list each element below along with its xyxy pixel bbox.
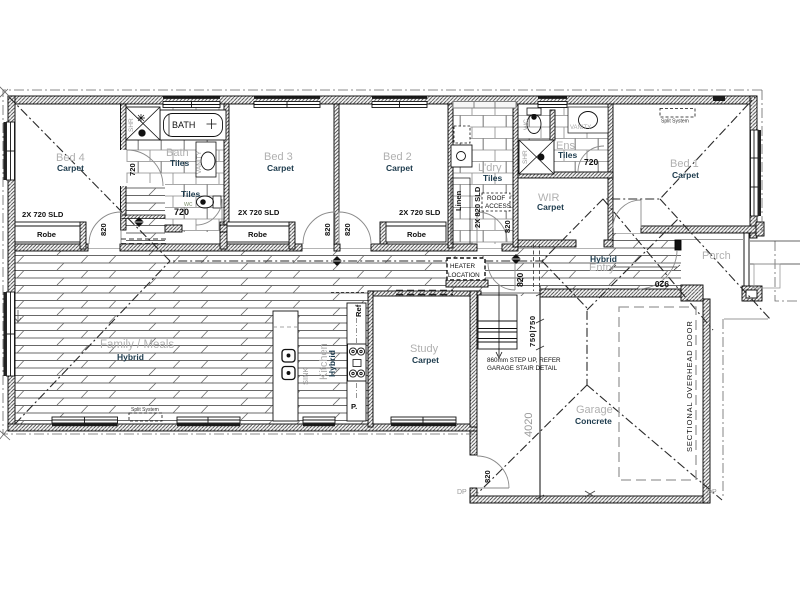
svg-text:720: 720 — [128, 163, 137, 176]
svg-text:Family / Meals: Family / Meals — [100, 339, 174, 351]
svg-text:Split System: Split System — [661, 119, 689, 125]
svg-text:820: 820 — [323, 223, 332, 236]
svg-text:P.: P. — [351, 402, 357, 411]
svg-text:ACCESS: ACCESS — [485, 203, 511, 210]
svg-text:Carpet: Carpet — [267, 163, 294, 173]
svg-text:2X 720 SLD: 2X 720 SLD — [238, 208, 280, 217]
svg-text:820: 820 — [483, 470, 492, 483]
svg-text:Study: Study — [410, 343, 439, 355]
svg-text:720: 720 — [174, 207, 189, 217]
svg-text:BATH: BATH — [172, 120, 195, 130]
svg-text:DP: DP — [457, 489, 467, 496]
svg-text:SHR: SHR — [128, 118, 135, 132]
svg-text:820: 820 — [503, 220, 512, 233]
svg-text:Ref: Ref — [354, 304, 363, 317]
svg-text:Tiles: Tiles — [558, 150, 577, 160]
svg-text:DP: DP — [707, 489, 717, 496]
svg-text:Entry: Entry — [589, 262, 615, 274]
svg-text:HEATER: HEATER — [450, 263, 476, 270]
svg-text:Tiles: Tiles — [170, 158, 189, 168]
svg-text:ROOF: ROOF — [487, 195, 505, 202]
svg-text:Hybrid: Hybrid — [327, 350, 337, 377]
svg-text:860mm STEP UP, REFER: 860mm STEP UP, REFER — [487, 357, 561, 364]
svg-text:Bed 2: Bed 2 — [383, 151, 412, 163]
svg-text:Tiles: Tiles — [181, 189, 200, 199]
svg-text:Bed 1: Bed 1 — [670, 158, 699, 170]
svg-text:SHR: SHR — [522, 150, 529, 164]
svg-text:Carpet: Carpet — [412, 355, 439, 365]
svg-text:Carpet: Carpet — [537, 202, 564, 212]
svg-text:Tiles: Tiles — [483, 173, 502, 183]
svg-text:Carpet: Carpet — [386, 163, 413, 173]
svg-text:Bed 3: Bed 3 — [264, 151, 293, 163]
svg-text:Robe: Robe — [248, 230, 267, 239]
svg-text:Porch: Porch — [702, 250, 731, 262]
svg-text:4020: 4020 — [523, 413, 535, 437]
svg-text:VANITY: VANITY — [196, 150, 203, 174]
svg-text:Concrete: Concrete — [575, 416, 612, 426]
svg-text:Hybrid: Hybrid — [117, 352, 144, 362]
svg-text:VANITY: VANITY — [570, 125, 591, 131]
svg-text:Split System: Split System — [131, 407, 159, 413]
svg-text:750|750: 750|750 — [528, 315, 537, 347]
svg-text:Linen: Linen — [454, 190, 463, 211]
svg-text:Robe: Robe — [37, 230, 56, 239]
svg-text:GARAGE STAIR DETAIL: GARAGE STAIR DETAIL — [487, 365, 558, 372]
svg-text:Carpet: Carpet — [672, 170, 699, 180]
svg-text:Carpet: Carpet — [57, 163, 84, 173]
svg-text:Garage: Garage — [576, 404, 613, 416]
svg-text:SINK: SINK — [301, 367, 310, 385]
svg-text:wc: wc — [183, 201, 193, 208]
svg-text:920: 920 — [655, 279, 669, 289]
svg-text:2X 820 SLD: 2X 820 SLD — [473, 186, 482, 228]
svg-text:SECTIONAL OVERHEAD DOOR: SECTIONAL OVERHEAD DOOR — [685, 320, 694, 452]
svg-text:Robe: Robe — [407, 230, 426, 239]
svg-text:820: 820 — [515, 273, 525, 287]
svg-text:820: 820 — [99, 223, 108, 236]
svg-text:LOCATION: LOCATION — [448, 272, 480, 279]
svg-text:WC: WC — [523, 119, 530, 130]
svg-text:720: 720 — [584, 157, 598, 167]
svg-text:2X 720 SLD: 2X 720 SLD — [399, 208, 441, 217]
svg-text:2X 720 SLD: 2X 720 SLD — [22, 210, 64, 219]
svg-text:820: 820 — [343, 223, 352, 236]
